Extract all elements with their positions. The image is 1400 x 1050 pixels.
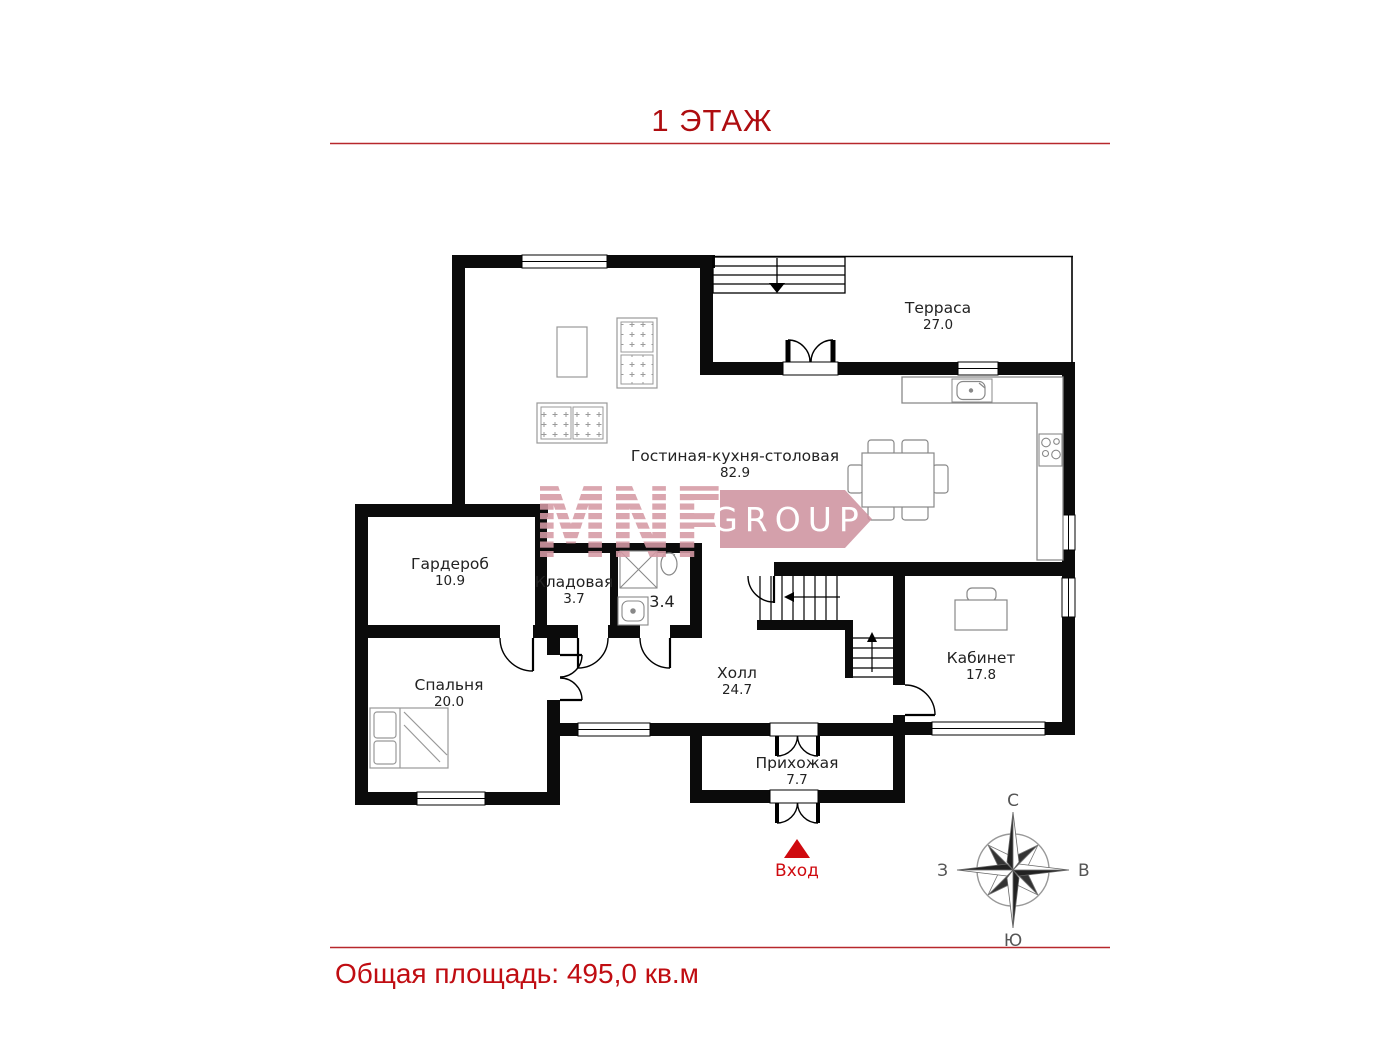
stair-door <box>748 562 774 603</box>
svg-text:Спальня: Спальня <box>415 676 484 694</box>
compass-label-west: З <box>937 861 948 881</box>
svg-text:Холл: Холл <box>717 664 757 682</box>
bed <box>370 708 448 768</box>
steps-down-arrow-icon <box>769 283 785 293</box>
room-label-hall: Холл 24.7 <box>717 664 757 698</box>
wardrobe-door <box>500 638 533 671</box>
sofa-vertical <box>617 318 657 388</box>
svg-text:27.0: 27.0 <box>923 317 953 333</box>
coffee-table <box>557 327 587 377</box>
bathroom-door <box>640 638 670 668</box>
svg-text:Гостиная-кухня-столовая: Гостиная-кухня-столовая <box>631 447 839 465</box>
compass-label-north: С <box>1007 791 1019 811</box>
window <box>932 722 1045 735</box>
svg-text:3.7: 3.7 <box>563 591 584 607</box>
svg-text:Гардероб: Гардероб <box>411 555 489 573</box>
window <box>958 362 998 375</box>
svg-text:Терраса: Терраса <box>904 299 971 317</box>
office-door <box>905 685 935 715</box>
entry-inner-double-door <box>770 723 818 756</box>
entry-exterior-double-door <box>770 790 818 823</box>
kitchen-sink-icon <box>952 379 992 402</box>
svg-text:20.0: 20.0 <box>434 694 464 710</box>
room-label-entry: Прихожая 7.7 <box>755 754 838 788</box>
sofa-horizontal <box>537 403 607 443</box>
room-label-wardrobe: Гардероб 10.9 <box>411 555 489 589</box>
terrace-outline <box>713 256 1073 363</box>
office-desk <box>955 588 1007 630</box>
footer-total-area: Общая площадь: 495,0 кв.м <box>335 958 699 989</box>
watermark-brand: MNF <box>533 467 725 580</box>
room-label-office: Кабинет 17.8 <box>947 649 1016 683</box>
svg-text:10.9: 10.9 <box>435 573 465 589</box>
room-label-bathroom: 3.4 <box>649 592 674 611</box>
terrace-double-door <box>783 340 838 375</box>
svg-text:17.8: 17.8 <box>966 667 996 683</box>
floor-plan: 1 ЭТАЖ <box>0 0 1400 1050</box>
stove-icon <box>1039 434 1062 466</box>
room-label-terrace: Терраса 27.0 <box>904 299 971 333</box>
page-title: 1 ЭТАЖ <box>651 103 772 138</box>
watermark-suffix: GROUP <box>712 500 866 539</box>
window <box>1062 515 1075 550</box>
entrance-marker: Вход <box>775 839 819 881</box>
pantry-door <box>578 638 608 668</box>
stairs-arrow-left-icon <box>784 592 794 602</box>
svg-text:7.7: 7.7 <box>786 772 807 788</box>
svg-text:3.4: 3.4 <box>649 592 674 611</box>
window <box>522 255 607 268</box>
svg-text:Кабинет: Кабинет <box>947 649 1016 667</box>
compass-label-east: В <box>1078 861 1090 881</box>
window <box>417 792 485 805</box>
compass-rose: С Ю З В <box>937 791 1090 951</box>
bathroom-sink-icon <box>618 597 648 625</box>
floor-plan-page: 1 ЭТАЖ <box>0 0 1400 1050</box>
entrance-label: Вход <box>775 861 819 881</box>
window <box>1062 578 1075 617</box>
stairs-arrow-up-icon <box>867 632 877 642</box>
svg-text:Прихожая: Прихожая <box>755 754 838 772</box>
room-label-bedroom: Спальня 20.0 <box>415 676 484 710</box>
entrance-arrow-icon <box>784 839 810 858</box>
window <box>578 723 650 736</box>
svg-text:24.7: 24.7 <box>722 682 752 698</box>
